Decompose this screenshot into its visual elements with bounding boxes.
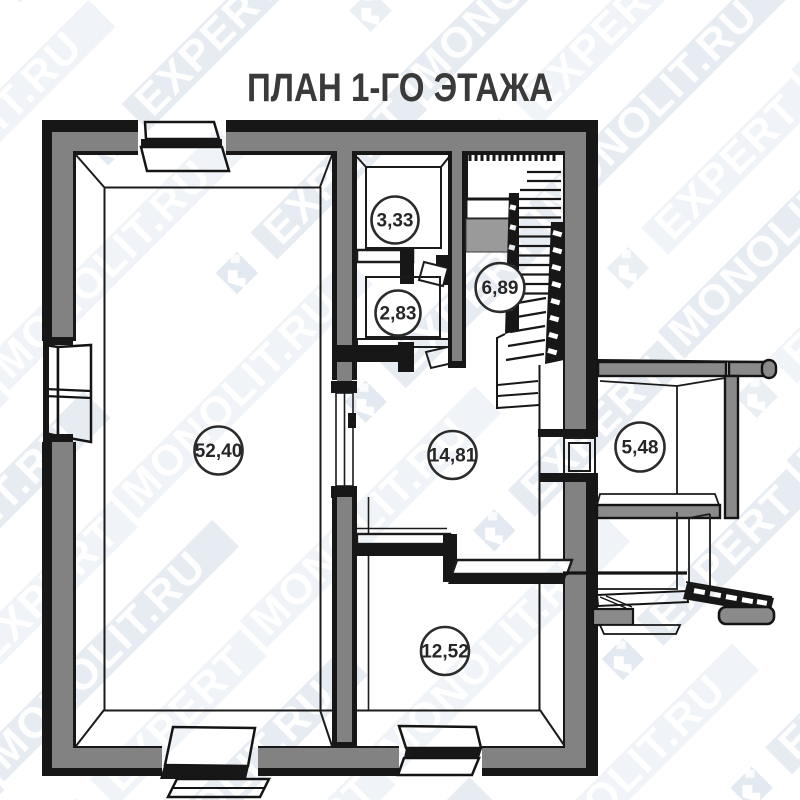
svg-text:ПЛАН 1-ГО ЭТАЖА: ПЛАН 1-ГО ЭТАЖА	[247, 66, 553, 110]
